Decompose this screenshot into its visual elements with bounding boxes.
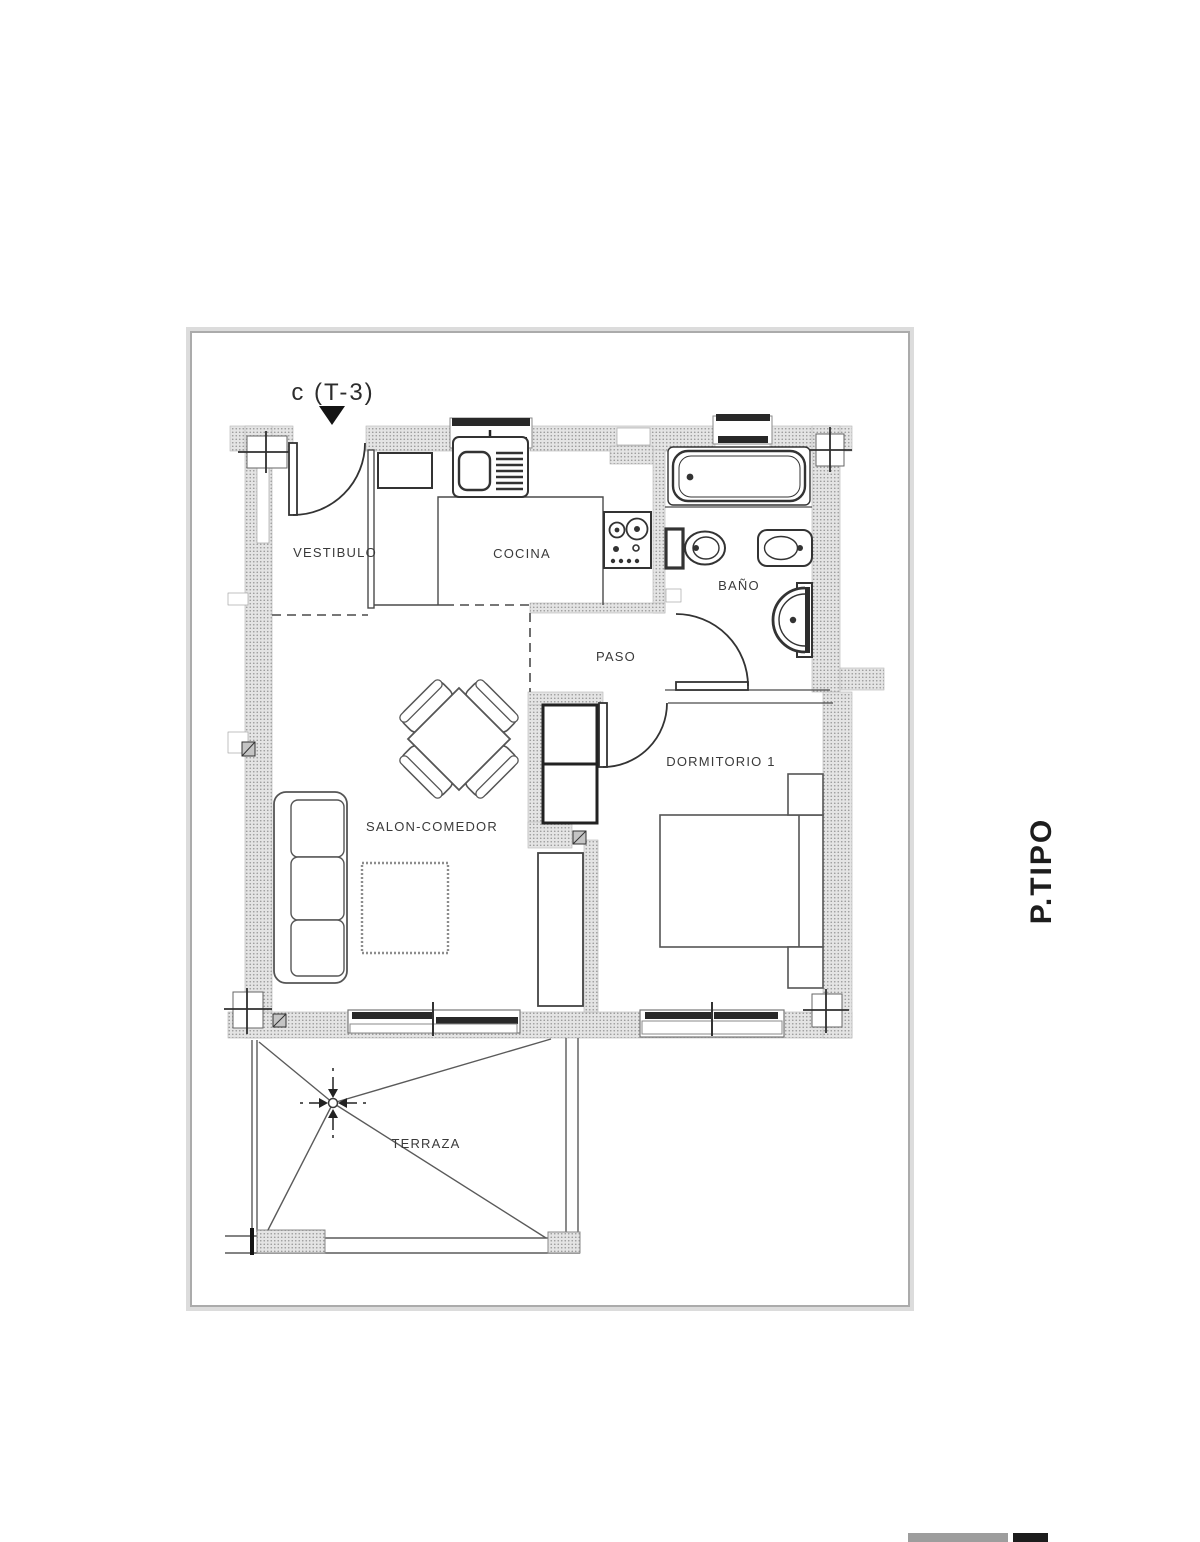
sideboard-cabinet [538, 853, 583, 1006]
wall-segment [366, 426, 452, 451]
terrace-drain [329, 1099, 338, 1108]
toilet [666, 529, 725, 568]
coffee-table [362, 863, 448, 953]
wall-segment [528, 822, 572, 848]
bidet [758, 530, 812, 566]
partition-vestibulo-cocina [368, 450, 374, 608]
wall-segment [840, 668, 884, 690]
wall-joint [228, 593, 248, 605]
room-label-bano: BAÑO [718, 578, 760, 593]
kitchen-sink [453, 437, 528, 497]
nightstand [788, 774, 823, 815]
unit-type-label: c (T-3) [291, 379, 374, 406]
wall-joint-symbol [273, 1014, 286, 1027]
scale-bar-gray [908, 1533, 1008, 1542]
scale-bar-black [1013, 1533, 1048, 1542]
wall-segment [530, 603, 665, 613]
room-label-dormitorio: DORMITORIO 1 [666, 754, 776, 769]
wall-segment [584, 840, 598, 1012]
wardrobe [543, 705, 597, 823]
wall-recess [666, 589, 681, 602]
wall-joint-symbol [573, 831, 586, 844]
nightstand [788, 947, 823, 988]
room-label-paso: PASO [596, 649, 636, 664]
wall-segment [653, 450, 665, 613]
room-label-cocina: COCINA [493, 546, 551, 561]
scale-bars [908, 1533, 1048, 1542]
floorplan-page: c (T-3) VESTIBULO COCINA BAÑO PASO DORMI… [0, 0, 1200, 1542]
floorplan-drawing: c (T-3) VESTIBULO COCINA BAÑO PASO DORMI… [0, 0, 1200, 1542]
terrace-pillar [257, 1230, 325, 1253]
fridge [378, 453, 432, 488]
plan-type-label: P.TIPO [1025, 818, 1058, 924]
room-label-terraza: TERRAZA [391, 1136, 460, 1151]
bathroom-window [713, 414, 772, 444]
wall-recess [617, 428, 650, 445]
wall-joint-symbol [242, 742, 255, 756]
stove [604, 512, 651, 568]
wall-segment [528, 692, 603, 705]
wall-segment [610, 446, 653, 464]
terrace-pillar [548, 1232, 580, 1253]
bathtub [668, 447, 810, 505]
room-label-salon: SALON-COMEDOR [366, 819, 498, 834]
column-symbol [238, 431, 296, 473]
wall-segment [528, 705, 543, 840]
wall-recess [257, 468, 269, 543]
wall-segment [823, 692, 852, 1038]
sofa [274, 792, 347, 983]
room-label-vestibulo: VESTIBULO [293, 545, 377, 560]
